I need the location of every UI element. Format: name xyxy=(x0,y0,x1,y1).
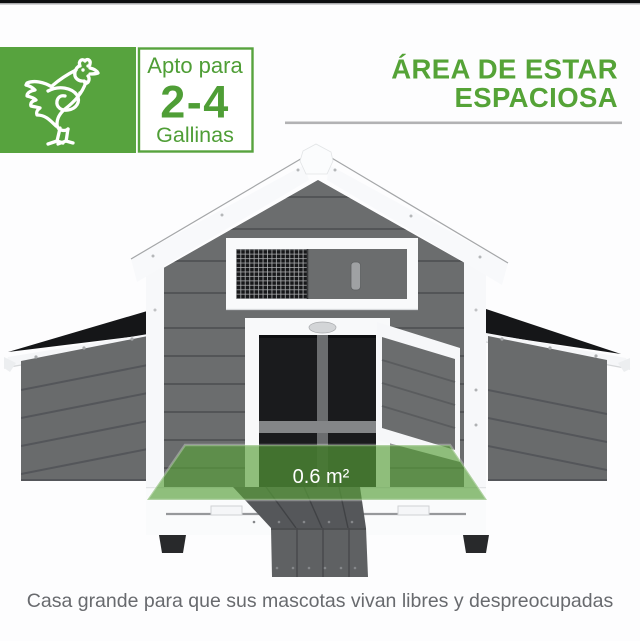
svg-text:ÁREA DE ESTAR: ÁREA DE ESTAR xyxy=(391,54,618,85)
svg-text:2-4: 2-4 xyxy=(160,77,230,128)
svg-text:Gallinas: Gallinas xyxy=(156,123,234,147)
svg-text:Apto para: Apto para xyxy=(147,53,243,78)
svg-text:0.6 m²: 0.6 m² xyxy=(293,466,350,488)
svg-text:Casa grande para que sus masco: Casa grande para que sus mascotas vivan … xyxy=(27,590,614,612)
svg-text:ESPACIOSA: ESPACIOSA xyxy=(454,82,618,113)
